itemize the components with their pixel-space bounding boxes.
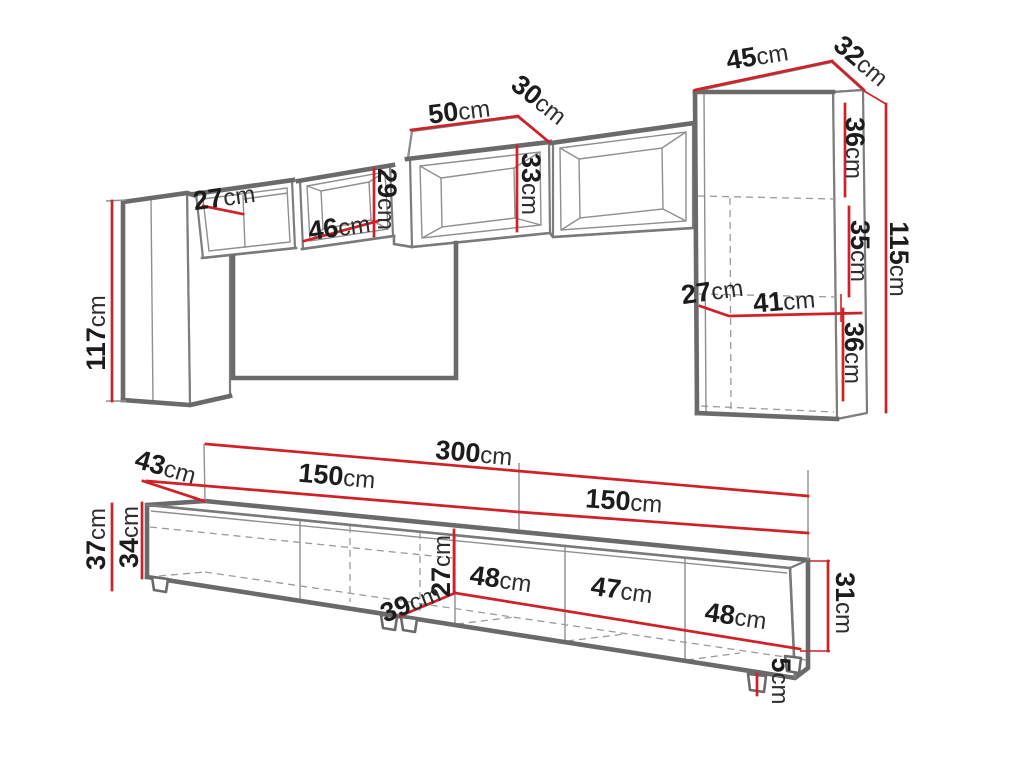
dim-label-36-bottom: 36cm [839, 322, 869, 384]
dim-label-34: 34cm [114, 506, 144, 568]
dim-label-115: 115cm [884, 221, 914, 297]
box46-step-connector [394, 236, 412, 247]
dim-label-33: 33cm [516, 153, 546, 215]
dim-label-117: 117cm [81, 295, 111, 371]
ext-300-left [204, 444, 205, 502]
wall-cabinet-4 [550, 123, 694, 237]
dim-label-31: 31cm [830, 572, 860, 634]
diagram-canvas: 117cm 27cm 46cm 29cm 50cm 30cm 33cm 45cm… [0, 0, 1024, 770]
dim-label-29: 29cm [372, 168, 402, 230]
wall-unit-group: 117cm 27cm 46cm 29cm 50cm 30cm 33cm 45cm… [81, 29, 914, 419]
wall-step-path [233, 243, 456, 378]
wall-step-outline [233, 243, 456, 378]
ext-117-top [106, 200, 126, 201]
dim-label-35: 35cm [845, 220, 875, 282]
dim-label-36-top: 36cm [840, 117, 870, 179]
right-cabinet-front-face [695, 92, 837, 419]
right-cabinet-left-edge [695, 92, 697, 413]
dim-label-5: 5cm [766, 657, 796, 704]
dim-label-150-left: 150cm [297, 458, 376, 495]
stand-foot-left [152, 577, 168, 592]
furniture-dimension-diagram: 117cm 27cm 46cm 29cm 50cm 30cm 33cm 45cm… [0, 0, 1024, 770]
dim-label-37: 37cm [81, 508, 111, 570]
dim-label-41: 41cm [752, 283, 816, 318]
dim-label-150-right: 150cm [584, 483, 663, 518]
tv-stand-group: 300cm 150cm 150cm 43cm 37cm 34cm 27cm 39… [81, 435, 860, 705]
ext-115-top [864, 91, 886, 104]
left-cabinet-front-face [123, 193, 190, 405]
dim-label-45: 45cm [724, 36, 790, 75]
